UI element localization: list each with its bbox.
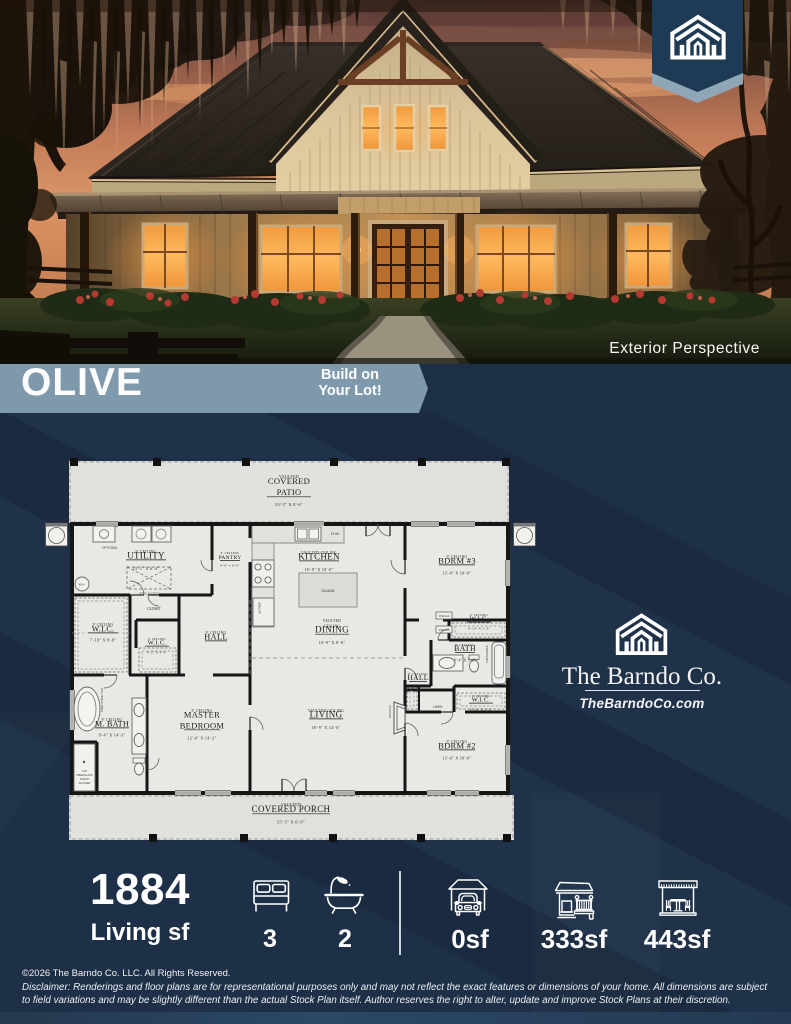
svg-text:TUB/SHOWER: TUB/SHOWER (485, 645, 489, 663)
svg-text:16′-9″ X 8′-6″: 16′-9″ X 8′-6″ (319, 640, 346, 645)
svg-text:W.I.C.: W.I.C. (472, 697, 491, 704)
svg-text:BDRM #3: BDRM #3 (438, 555, 476, 565)
svg-text:COVERED PORCH: COVERED PORCH (252, 804, 331, 814)
svg-text:13′-1″ X 6′-4″: 13′-1″ X 6′-4″ (133, 566, 160, 571)
svg-text:4′-2″ X 4′-4″: 4′-2″ X 4′-4″ (147, 650, 168, 654)
svg-text:16′-9″ X 10′-0″: 16′-9″ X 10′-0″ (304, 567, 333, 572)
svg-text:PANTRY: PANTRY (219, 555, 242, 561)
svg-text:D.W.: D.W. (331, 531, 340, 536)
svg-text:SHOWER: SHOWER (79, 781, 91, 785)
svg-text:SHELVES: SHELVES (439, 615, 450, 618)
svg-text:CLOSET: CLOSET (147, 607, 161, 611)
svg-text:BEDROOM: BEDROOM (180, 720, 225, 730)
svg-text:M. BATH: M. BATH (95, 719, 129, 728)
svg-text:PATIO: PATIO (277, 487, 302, 497)
svg-text:W.H.: W.H. (79, 583, 86, 587)
svg-text:18′-9″ X 14′-6″: 18′-9″ X 14′-6″ (311, 725, 340, 730)
svg-text:12′-6″ X 14′-2″: 12′-6″ X 14′-2″ (187, 735, 216, 740)
svg-text:24″ REF: 24″ REF (258, 602, 262, 614)
svg-text:A/C CONDENSER: A/C CONDENSER (514, 518, 536, 522)
svg-text:BATH: BATH (454, 644, 476, 653)
svg-text:9′-4″ X 5′-2″: 9′-4″ X 5′-2″ (454, 659, 477, 663)
svg-text:HALL: HALL (204, 631, 228, 641)
svg-text:INSERT: INSERT (80, 777, 90, 781)
svg-text:9′-4″ X 14′-3″: 9′-4″ X 14′-3″ (99, 733, 126, 738)
svg-text:55′-5″ X 8′-6″: 55′-5″ X 8′-6″ (275, 502, 303, 507)
svg-text:LIVING: LIVING (310, 709, 343, 719)
svg-text:ISLAND: ISLAND (322, 589, 335, 593)
svg-text:DINING: DINING (315, 625, 349, 635)
svg-text:7′-10″ X 9′-8″: 7′-10″ X 9′-8″ (90, 638, 117, 643)
svg-text:13′-0″ X 10′-0″: 13′-0″ X 10′-0″ (442, 570, 471, 575)
svg-text:W.I.C.: W.I.C. (470, 616, 489, 623)
svg-text:55′-5″ X 6′-0″: 55′-5″ X 6′-0″ (277, 819, 305, 824)
svg-text:4′-0″ x 8′-0″: 4′-0″ x 8′-0″ (220, 563, 240, 567)
svg-text:OPTIONAL: OPTIONAL (102, 546, 118, 550)
svg-text:OPTIONAL: OPTIONAL (388, 704, 392, 718)
svg-text:FIBERGLASS: FIBERGLASS (76, 773, 93, 777)
svg-text:MASTER: MASTER (184, 709, 220, 719)
svg-text:W.I.C.: W.I.C. (92, 624, 115, 633)
svg-text:A/C CONDENSER: A/C CONDENSER (46, 518, 68, 522)
svg-text:13′-0″ X 10′-0″: 13′-0″ X 10′-0″ (442, 755, 471, 760)
svg-text:COVERED: COVERED (268, 476, 310, 486)
svg-text:4′-10″ X 2′-3″: 4′-10″ X 2′-3″ (468, 626, 491, 630)
svg-text:W.I.C.: W.I.C. (148, 640, 167, 647)
svg-text:VAULTED: VAULTED (323, 619, 341, 623)
svg-text:UTILITY: UTILITY (127, 550, 165, 560)
svg-text:BDRM #2: BDRM #2 (438, 740, 476, 750)
svg-text:KITCHEN: KITCHEN (298, 551, 340, 561)
svg-text:4′-10″ X 2′-2″: 4′-10″ X 2′-2″ (470, 707, 493, 711)
svg-text:LINEN: LINEN (433, 705, 443, 709)
svg-text:3′x5′: 3′x5′ (82, 769, 88, 773)
svg-text:HALL: HALL (407, 673, 428, 682)
svg-text:FREE STAND TUB: FREE STAND TUB (100, 688, 104, 712)
svg-text:SHELVES: SHELVES (439, 629, 450, 632)
